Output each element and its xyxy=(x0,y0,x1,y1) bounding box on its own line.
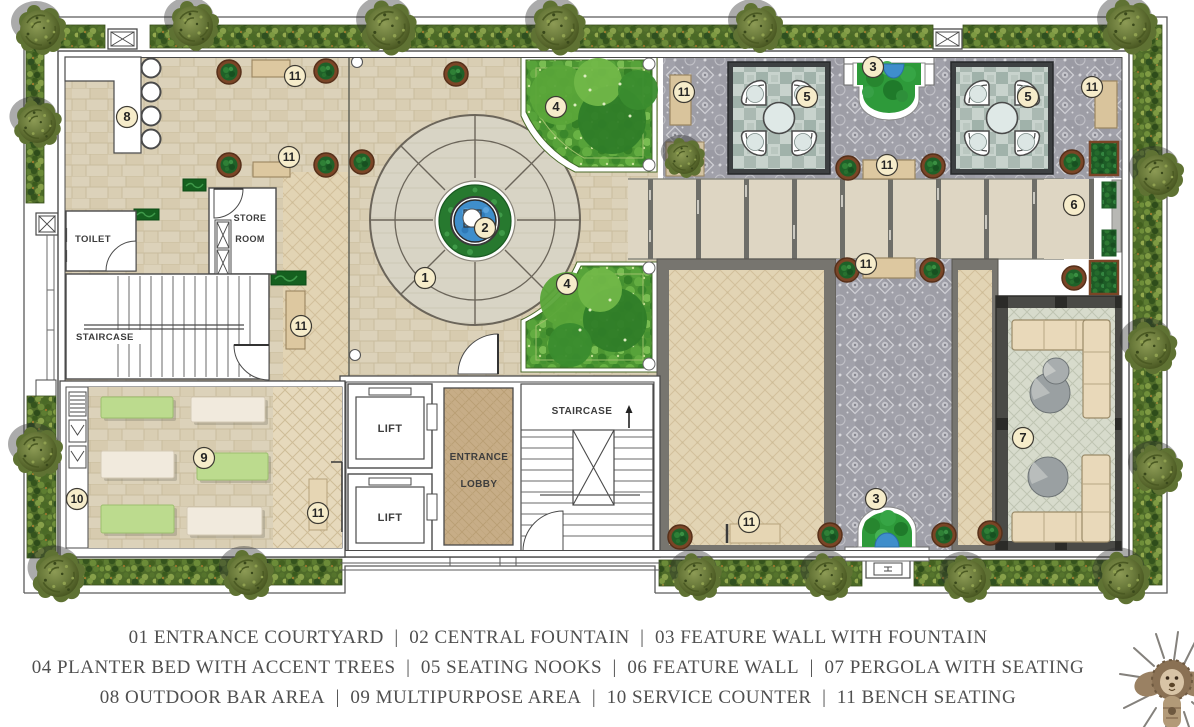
svg-text:LIFT: LIFT xyxy=(378,423,403,435)
svg-text:11: 11 xyxy=(1086,82,1099,94)
svg-text:3: 3 xyxy=(872,491,879,506)
svg-text:08 OUTDOOR BAR AREA | 09 MUL: 08 OUTDOOR BAR AREA | 09 MULTIPURPOSE AR… xyxy=(100,687,1017,708)
svg-text:6: 6 xyxy=(1070,197,1077,212)
svg-text:4: 4 xyxy=(552,99,560,114)
svg-text:LIFT: LIFT xyxy=(378,512,403,524)
svg-text:11: 11 xyxy=(881,160,894,172)
svg-text:8: 8 xyxy=(123,109,130,124)
svg-text:11: 11 xyxy=(860,259,873,271)
svg-text:7: 7 xyxy=(1019,430,1026,445)
svg-text:3: 3 xyxy=(869,59,876,74)
svg-text:ENTRANCE: ENTRANCE xyxy=(450,452,509,463)
svg-text:11: 11 xyxy=(678,87,691,99)
svg-text:04 PLANTER BED WITH ACCENT TRE: 04 PLANTER BED WITH ACCENT TREES | 05 SE… xyxy=(32,657,1084,678)
svg-text:5: 5 xyxy=(1024,89,1031,104)
svg-text:STORE: STORE xyxy=(234,213,267,223)
svg-text:01 ENTRANCE COURTYARD | 02 C: 01 ENTRANCE COURTYARD | 02 CENTRAL FOUNT… xyxy=(129,627,988,648)
svg-text:ROOM: ROOM xyxy=(235,234,265,244)
svg-text:5: 5 xyxy=(803,89,810,104)
svg-text:TOILET: TOILET xyxy=(75,234,111,245)
svg-text:10: 10 xyxy=(71,494,84,506)
svg-text:1: 1 xyxy=(421,270,428,285)
svg-text:11: 11 xyxy=(312,508,325,520)
svg-text:LOBBY: LOBBY xyxy=(461,479,498,490)
svg-text:STAIRCASE: STAIRCASE xyxy=(76,332,134,343)
svg-text:11: 11 xyxy=(289,71,302,83)
svg-text:STAIRCASE: STAIRCASE xyxy=(552,406,613,417)
svg-text:4: 4 xyxy=(563,276,571,291)
svg-text:11: 11 xyxy=(283,152,296,164)
svg-text:11: 11 xyxy=(743,517,756,529)
svg-text:11: 11 xyxy=(295,321,308,333)
svg-text:9: 9 xyxy=(200,450,207,465)
svg-text:2: 2 xyxy=(481,220,488,235)
